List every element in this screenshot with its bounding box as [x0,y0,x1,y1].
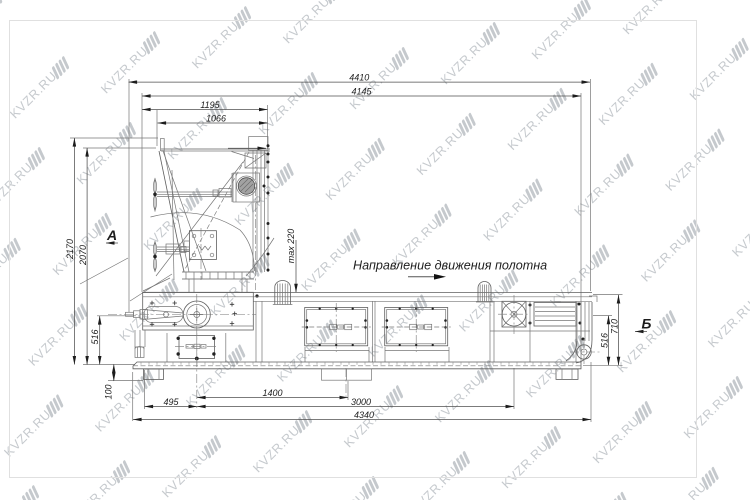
svg-text:KVZR.RU: KVZR.RU [438,35,490,87]
svg-text:KVZR.RU: KVZR.RU [432,373,484,425]
svg-text:KVZR.RU: KVZR.RU [572,166,624,218]
svg-text:KVZR.RU: KVZR.RU [280,0,332,46]
svg-text:KVZR.RU: KVZR.RU [505,101,557,153]
svg-text:KVZR.RU: KVZR.RU [705,298,750,350]
svg-text:KVZR.RU: KVZR.RU [663,141,715,193]
svg-text:KVZR.RU: KVZR.RU [275,332,327,384]
svg-text:KVZR.RU: KVZR.RU [590,414,642,466]
svg-text:KVZR.RU: KVZR.RU [317,489,369,500]
svg-text:Б: Б [642,316,652,332]
svg-text:4410: 4410 [349,73,369,83]
svg-text:KVZR.RU: KVZR.RU [408,464,460,500]
svg-text:KVZR.RU: KVZR.RU [687,51,739,103]
svg-text:710: 710 [609,319,619,334]
svg-text:KVZR.RU: KVZR.RU [68,473,120,500]
svg-text:KVZR.RU: KVZR.RU [0,160,36,212]
svg-text:KVZR.RU: KVZR.RU [620,0,672,37]
svg-text:KVZR.RU: KVZR.RU [681,389,733,441]
svg-text:1066: 1066 [206,113,226,123]
svg-text:KVZR.RU: KVZR.RU [184,357,236,409]
svg-text:max 220: max 220 [286,229,296,264]
svg-text:100: 100 [104,384,114,399]
svg-text:516: 516 [599,333,609,348]
svg-text:KVZR.RU: KVZR.RU [26,316,78,368]
svg-text:KVZR.RU: KVZR.RU [141,201,193,253]
svg-text:KVZR.RU: KVZR.RU [250,423,302,475]
svg-text:KVZR.RU: KVZR.RU [93,382,145,434]
svg-text:2070: 2070 [78,245,88,266]
svg-text:4145: 4145 [351,86,372,96]
svg-text:3000: 3000 [351,397,371,407]
svg-text:KVZR.RU: KVZR.RU [74,135,126,187]
svg-text:KVZR.RU: KVZR.RU [189,19,241,71]
svg-text:KVZR.RU: KVZR.RU [299,241,351,293]
svg-text:495: 495 [163,397,179,407]
svg-text:2170: 2170 [65,239,75,260]
svg-text:KVZR.RU: KVZR.RU [159,448,211,500]
svg-text:KVZR.RU: KVZR.RU [98,44,150,96]
svg-text:KVZR.RU: KVZR.RU [50,226,102,278]
svg-text:KVZR.RU: KVZR.RU [414,126,466,178]
svg-text:KVZR.RU: KVZR.RU [256,85,308,137]
svg-text:516: 516 [90,329,100,344]
svg-text:KVZR.RU: KVZR.RU [548,257,600,309]
svg-text:4340: 4340 [354,410,374,420]
svg-text:KVZR.RU: KVZR.RU [457,282,509,334]
svg-text:KVZR.RU: KVZR.RU [657,480,709,500]
svg-text:KVZR.RU: KVZR.RU [639,232,691,284]
svg-text:KVZR.RU: KVZR.RU [323,151,375,203]
svg-text:1195: 1195 [200,100,220,110]
svg-text:KVZR.RU: KVZR.RU [7,69,59,121]
svg-text:1400: 1400 [262,388,282,398]
svg-text:KVZR.RU: KVZR.RU [730,207,750,259]
svg-text:KVZR.RU: KVZR.RU [481,191,533,243]
svg-text:KVZR.RU: KVZR.RU [529,10,581,62]
svg-text:А: А [106,227,117,243]
svg-text:Направление движения полотна: Направление движения полотна [353,259,547,273]
svg-text:KVZR.RU: KVZR.RU [523,348,575,400]
svg-text:KVZR.RU: KVZR.RU [366,307,418,359]
svg-text:KVZR.RU: KVZR.RU [596,76,648,128]
svg-text:KVZR.RU: KVZR.RU [499,439,551,491]
